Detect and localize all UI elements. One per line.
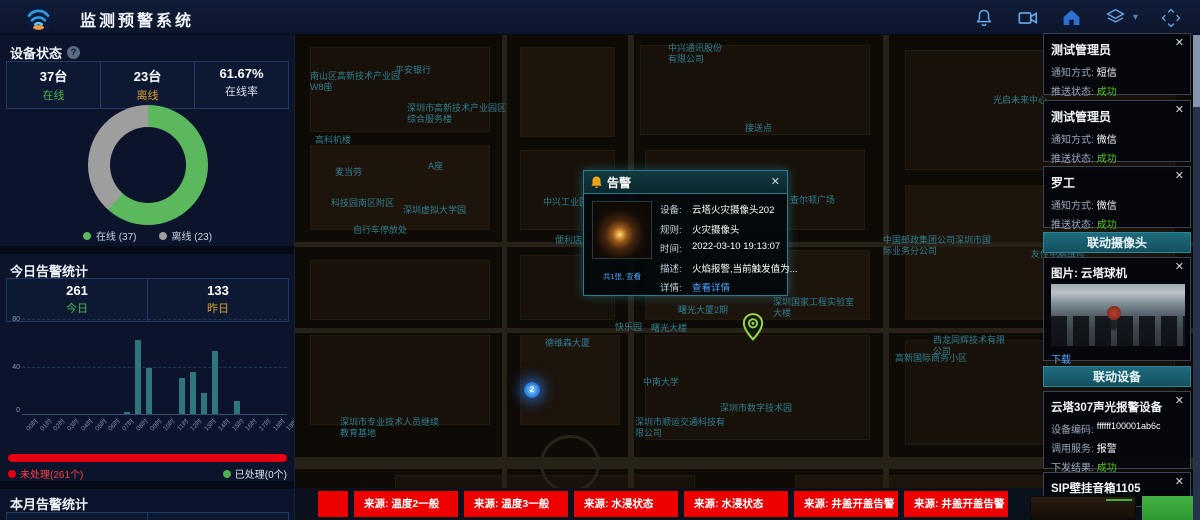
legend-online: 在线 (37)	[83, 228, 137, 243]
map-road	[883, 35, 889, 520]
map-label: 深圳市数字技术园	[720, 403, 792, 414]
alarm-icon[interactable]	[973, 7, 995, 29]
device-donut	[88, 105, 208, 225]
chevron-down-icon[interactable]: ▾	[1133, 12, 1138, 23]
field-time: 时间: 2022-03-10 19:13:07	[660, 241, 798, 255]
divider	[0, 246, 295, 254]
map-label: 中国邮政集团公司深圳市国际业务分公司	[883, 235, 995, 257]
device-status-title: 设备状态 ?	[10, 43, 80, 62]
left-stats-panel: 设备状态 ? 37台 在线 23台 离线 61.67% 在线率 在线 (37)	[0, 35, 295, 520]
stat-month-last: 1146	[147, 513, 288, 520]
device-title: 云塔307声光报警设备	[1051, 399, 1183, 415]
donut-hole	[110, 127, 186, 203]
field-rule: 规则: 火灾摄像头	[660, 222, 798, 236]
notify-name: 测试管理员	[1051, 41, 1183, 58]
legend-offline: 离线 (23)	[159, 228, 213, 243]
device-status-stats: 37台 在线 23台 离线 61.67% 在线率	[6, 61, 289, 109]
map-label: 快乐园	[615, 322, 642, 333]
close-icon[interactable]: ✕	[1175, 396, 1184, 407]
notification-card: ✕ 罗工 通知方式:微信 推送状态:成功	[1043, 166, 1191, 228]
field-detail: 详情: 查看详情	[660, 280, 798, 294]
right-scrollbar	[1193, 35, 1200, 520]
video-camera-icon[interactable]	[1017, 7, 1039, 29]
app-logo-icon	[24, 3, 53, 32]
bar	[201, 393, 207, 414]
bar	[135, 340, 141, 414]
legend-processed: 已处理(0个)	[223, 466, 287, 481]
map-label: 中兴通讯股份有限公司	[668, 43, 730, 65]
field-device: 设备: 云塔火灾摄像头202	[660, 202, 798, 216]
notify-name: 测试管理员	[1051, 108, 1183, 125]
layers-icon[interactable]	[1105, 7, 1127, 29]
alert-bell-icon	[591, 176, 602, 189]
month-alarm-title: 本月告警统计	[10, 494, 88, 513]
bar	[190, 372, 196, 414]
camera-snapshot-image[interactable]	[1051, 284, 1185, 346]
home-icon[interactable]	[1061, 7, 1083, 29]
fire-snapshot-thumbnail[interactable]	[592, 201, 652, 259]
hourly-xlabels: 00时01时02时03时04时05时06时07时08时09时10时11时12时1…	[22, 419, 287, 439]
map-label: 深圳市高新技术产业园区综合服务楼	[407, 103, 511, 125]
alert-tile[interactable]: 来源: 温度3一般	[464, 491, 568, 517]
map-label: 自行车停放处	[353, 225, 407, 236]
linked-cameras-header[interactable]: 联动摄像头	[1043, 232, 1191, 253]
map-block	[310, 145, 490, 230]
monitoring-dashboard: 监测预警系统	[0, 0, 1200, 520]
view-detail-link[interactable]: 查看详情	[692, 280, 730, 294]
help-icon[interactable]: ?	[67, 46, 80, 59]
legend-unprocessed: 未处理(261个)	[8, 466, 83, 481]
map-label: 便利店	[555, 235, 582, 246]
download-link[interactable]: 下载	[1051, 355, 1071, 366]
map-label: 曙光大厦2期	[678, 305, 728, 316]
scrollbar-thumb[interactable]	[1193, 35, 1200, 107]
legend-dot-online	[83, 232, 91, 240]
bar	[124, 412, 130, 414]
stat-online: 37台 在线	[7, 62, 100, 108]
bar	[234, 401, 240, 414]
map-label: 中南大学	[643, 377, 679, 388]
map-block	[520, 47, 615, 137]
map-label: 深圳市专业技术人员继续教育基地	[340, 417, 444, 439]
map-label: 麦当劳	[335, 167, 362, 178]
alert-tile[interactable]: 来源: 温度2一般	[354, 491, 458, 517]
hourly-bar-chart: 80 40 0 00时01时02时03时04时05时06时07时08时09时10…	[6, 315, 289, 437]
map-label: 光启未来中心	[993, 95, 1047, 106]
location-pin-marker[interactable]	[742, 313, 764, 341]
field-description: 描述: 火焰报警,当前触发值为...	[660, 261, 798, 275]
hourly-bars	[22, 319, 287, 414]
map-label: 科技园南区附区	[331, 198, 394, 209]
linked-devices-header[interactable]: 联动设备	[1043, 366, 1191, 387]
stat-offline: 23台 离线	[100, 62, 194, 108]
month-alarm-stats: 763 1146	[6, 512, 289, 520]
legend-dot-unprocessed	[8, 470, 16, 478]
map-roundabout	[540, 435, 600, 493]
close-icon[interactable]: ✕	[1175, 38, 1184, 49]
map-label: 德维森大厦	[545, 338, 590, 349]
alert-tile[interactable]: 来源: 水浸状态	[574, 491, 678, 517]
bar	[179, 378, 185, 414]
processed-legend: 未处理(261个) 已处理(0个)	[8, 466, 287, 481]
map-label: 深圳市顺运交通科技有限公司	[635, 417, 731, 439]
legend-dot-processed	[223, 470, 231, 478]
alert-popup-header: 告警 ✕	[584, 171, 787, 194]
close-icon[interactable]: ✕	[1175, 105, 1184, 116]
stat-online-rate: 61.67% 在线率	[194, 62, 288, 108]
close-icon[interactable]: ✕	[1175, 262, 1184, 273]
map-label: 接送点	[745, 123, 772, 134]
map-label: 中兴工业园	[543, 197, 588, 208]
camera-image-card: ✕ 图片: 云塔球机 下载	[1043, 257, 1191, 361]
alert-tile[interactable]: 来源: 水浸状态	[684, 491, 788, 517]
map-label: 深圳虚拟大学园	[403, 205, 466, 216]
linked-device-card: ✕ 云塔307声光报警设备 设备编码:ffffff100001ab6c 调用服务…	[1043, 391, 1191, 469]
notification-card: ✕ 测试管理员 通知方式:短信 推送状态:成功	[1043, 33, 1191, 95]
map-label: A座	[428, 161, 443, 172]
notify-name: 罗工	[1051, 174, 1183, 191]
alert-popup: 告警 ✕ 共1张, 查看 设备: 云塔火灾摄像头202 规则: 火灾摄像头 时间…	[583, 170, 788, 296]
fullscreen-icon[interactable]	[1160, 7, 1182, 29]
unprocessed-progress-bar	[8, 454, 287, 462]
alert-popup-title: 告警	[607, 174, 766, 191]
page-title: 监测预警系统	[80, 7, 194, 31]
app-header: 监测预警系统	[0, 0, 1200, 35]
sip-title: SIP壁挂音箱1105	[1051, 480, 1183, 496]
camera-feed-thumbnail-green[interactable]	[1142, 496, 1200, 520]
bar	[146, 368, 152, 414]
alert-tile-partial[interactable]	[318, 491, 348, 517]
snapshot-view-link[interactable]: 共1张, 查看	[592, 271, 652, 282]
map-block	[310, 335, 490, 425]
close-icon[interactable]: ✕	[1175, 477, 1184, 488]
legend-dot-offline	[159, 232, 167, 240]
map-label: 曙光大楼	[651, 323, 687, 334]
donut-legend: 在线 (37) 离线 (23)	[0, 228, 295, 243]
map-block	[310, 260, 490, 320]
cluster-dot-marker[interactable]: 2	[524, 382, 540, 398]
camera-feed-thumbnail[interactable]	[1030, 496, 1136, 520]
stat-month-current: 763	[7, 513, 147, 520]
bottom-alert-list: 来源: 温度2一般来源: 温度3一般来源: 水浸状态来源: 水浸状态来源: 井盖…	[354, 491, 1008, 517]
map-label: 南山区高新技术产业园W8座	[310, 71, 402, 93]
bar	[212, 351, 218, 414]
map-label: 高新国际商务小区	[895, 353, 967, 364]
alert-tile[interactable]: 来源: 井盖开盖告警	[794, 491, 898, 517]
alert-tile[interactable]: 来源: 井盖开盖告警	[904, 491, 1008, 517]
map-label: 高科机楼	[315, 135, 351, 146]
divider	[0, 481, 295, 489]
notification-card: ✕ 测试管理员 通知方式:微信 推送状态:成功	[1043, 100, 1191, 162]
camera-image-title: 图片: 云塔球机	[1051, 265, 1183, 281]
close-icon[interactable]: ✕	[1175, 171, 1184, 182]
close-icon[interactable]: ✕	[771, 177, 780, 188]
